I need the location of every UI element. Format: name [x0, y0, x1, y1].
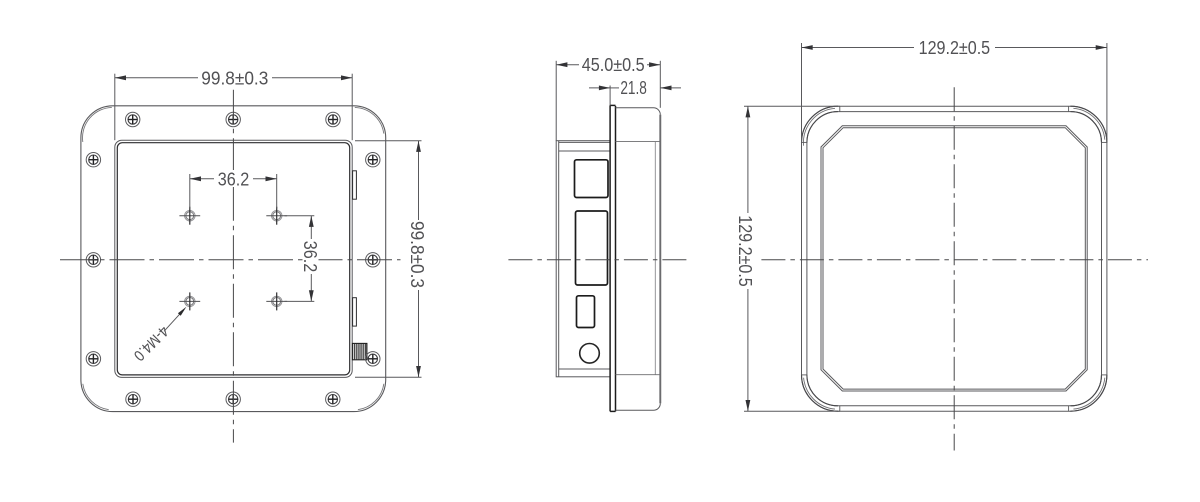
svg-text:36.2: 36.2 [300, 241, 321, 273]
svg-text:99.8±0.3: 99.8±0.3 [407, 221, 428, 288]
svg-text:129.2±0.5: 129.2±0.5 [919, 37, 991, 58]
svg-text:129.2±0.5: 129.2±0.5 [735, 215, 756, 287]
svg-text:45.0±0.5: 45.0±0.5 [582, 54, 645, 75]
svg-text:36.2: 36.2 [218, 168, 250, 189]
svg-text:99.8±0.3: 99.8±0.3 [201, 68, 268, 89]
svg-text:21.8: 21.8 [620, 77, 647, 98]
